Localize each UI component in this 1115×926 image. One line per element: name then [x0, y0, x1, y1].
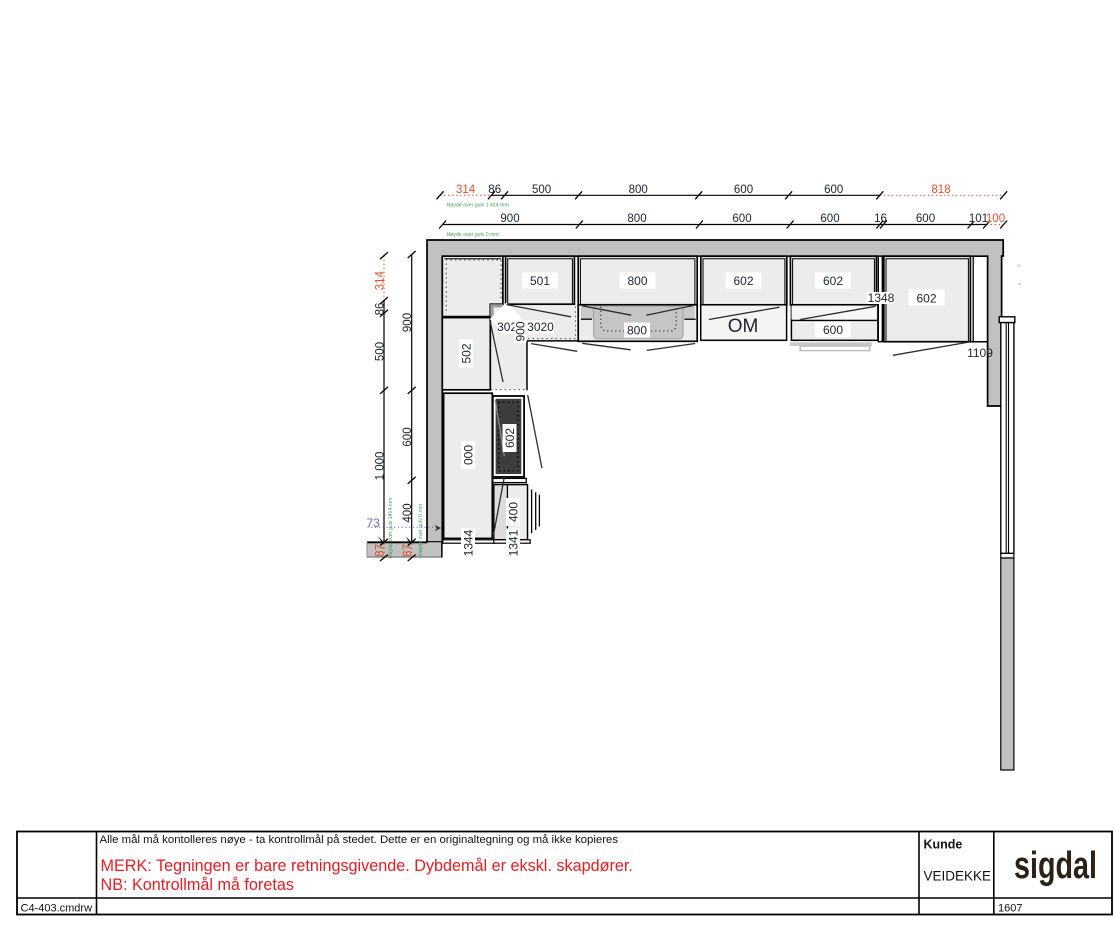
svg-text:Kunde: Kunde: [924, 838, 963, 852]
svg-text:500: 500: [375, 342, 387, 361]
svg-text:Høyde over gulv 1414 mm: Høyde over gulv 1414 mm: [388, 498, 394, 559]
svg-text:400: 400: [507, 502, 521, 522]
svg-text:600: 600: [823, 323, 843, 337]
svg-text:314: 314: [456, 184, 476, 196]
svg-text:OM: OM: [728, 316, 759, 337]
svg-text:1 000: 1 000: [375, 452, 387, 481]
svg-text:C4-403.cmdrw: C4-403.cmdrw: [21, 903, 93, 915]
svg-text:Høyde over gulv 0 mm: Høyde over gulv 0 mm: [418, 504, 424, 556]
svg-text:800: 800: [627, 324, 647, 338]
svg-text:Høyde over gulv 1 414 mm: Høyde over gulv 1 414 mm: [447, 203, 509, 209]
svg-text:MERK: Tegningen er bare retnin: MERK: Tegningen er bare retningsgivende.…: [101, 857, 633, 875]
svg-text:87: 87: [375, 544, 387, 557]
svg-text:602: 602: [916, 292, 936, 306]
svg-text:1109: 1109: [967, 346, 993, 360]
svg-text:NB: Kontrollmål må foretas: NB: Kontrollmål må foretas: [101, 876, 294, 894]
svg-text:100: 100: [986, 213, 1005, 225]
svg-text:86: 86: [488, 184, 501, 196]
svg-text:900: 900: [402, 313, 414, 332]
svg-text:800: 800: [627, 274, 647, 288]
svg-text:900: 900: [500, 213, 519, 225]
svg-text:sigdal: sigdal: [1014, 845, 1097, 887]
svg-text:800: 800: [627, 213, 646, 225]
svg-text:600: 600: [820, 213, 839, 225]
svg-text:600: 600: [824, 184, 843, 196]
svg-text:Alle mål må kontolleres nøye -: Alle mål må kontolleres nøye - ta kontro…: [100, 834, 619, 846]
svg-text:1607: 1607: [998, 903, 1022, 915]
svg-text:87: 87: [402, 544, 414, 557]
svg-text:500: 500: [532, 184, 551, 196]
svg-text:16: 16: [874, 213, 887, 225]
svg-text:314: 314: [375, 271, 387, 291]
svg-text:900: 900: [514, 321, 528, 341]
svg-text:86: 86: [375, 303, 387, 316]
svg-text:600: 600: [402, 427, 414, 446]
svg-text:VEIDEKKE: VEIDEKKE: [924, 869, 992, 884]
svg-text:73: 73: [367, 516, 381, 530]
svg-text:Høyde over gulv 0 mm: Høyde over gulv 0 mm: [447, 232, 499, 238]
svg-text:800: 800: [629, 184, 648, 196]
svg-text:602: 602: [503, 428, 517, 448]
svg-text:818: 818: [931, 184, 950, 196]
svg-text:1344: 1344: [462, 529, 476, 556]
svg-text:000: 000: [462, 445, 476, 465]
svg-text:1348: 1348: [868, 291, 895, 305]
svg-text:501: 501: [530, 274, 550, 288]
svg-text:1341: 1341: [507, 529, 521, 556]
svg-text:602: 602: [823, 274, 843, 288]
svg-text:600: 600: [916, 213, 935, 225]
svg-text:602: 602: [733, 274, 753, 288]
svg-text:400: 400: [402, 503, 414, 522]
svg-text:600: 600: [734, 184, 753, 196]
svg-text:600: 600: [732, 213, 751, 225]
svg-text:502: 502: [460, 343, 474, 363]
